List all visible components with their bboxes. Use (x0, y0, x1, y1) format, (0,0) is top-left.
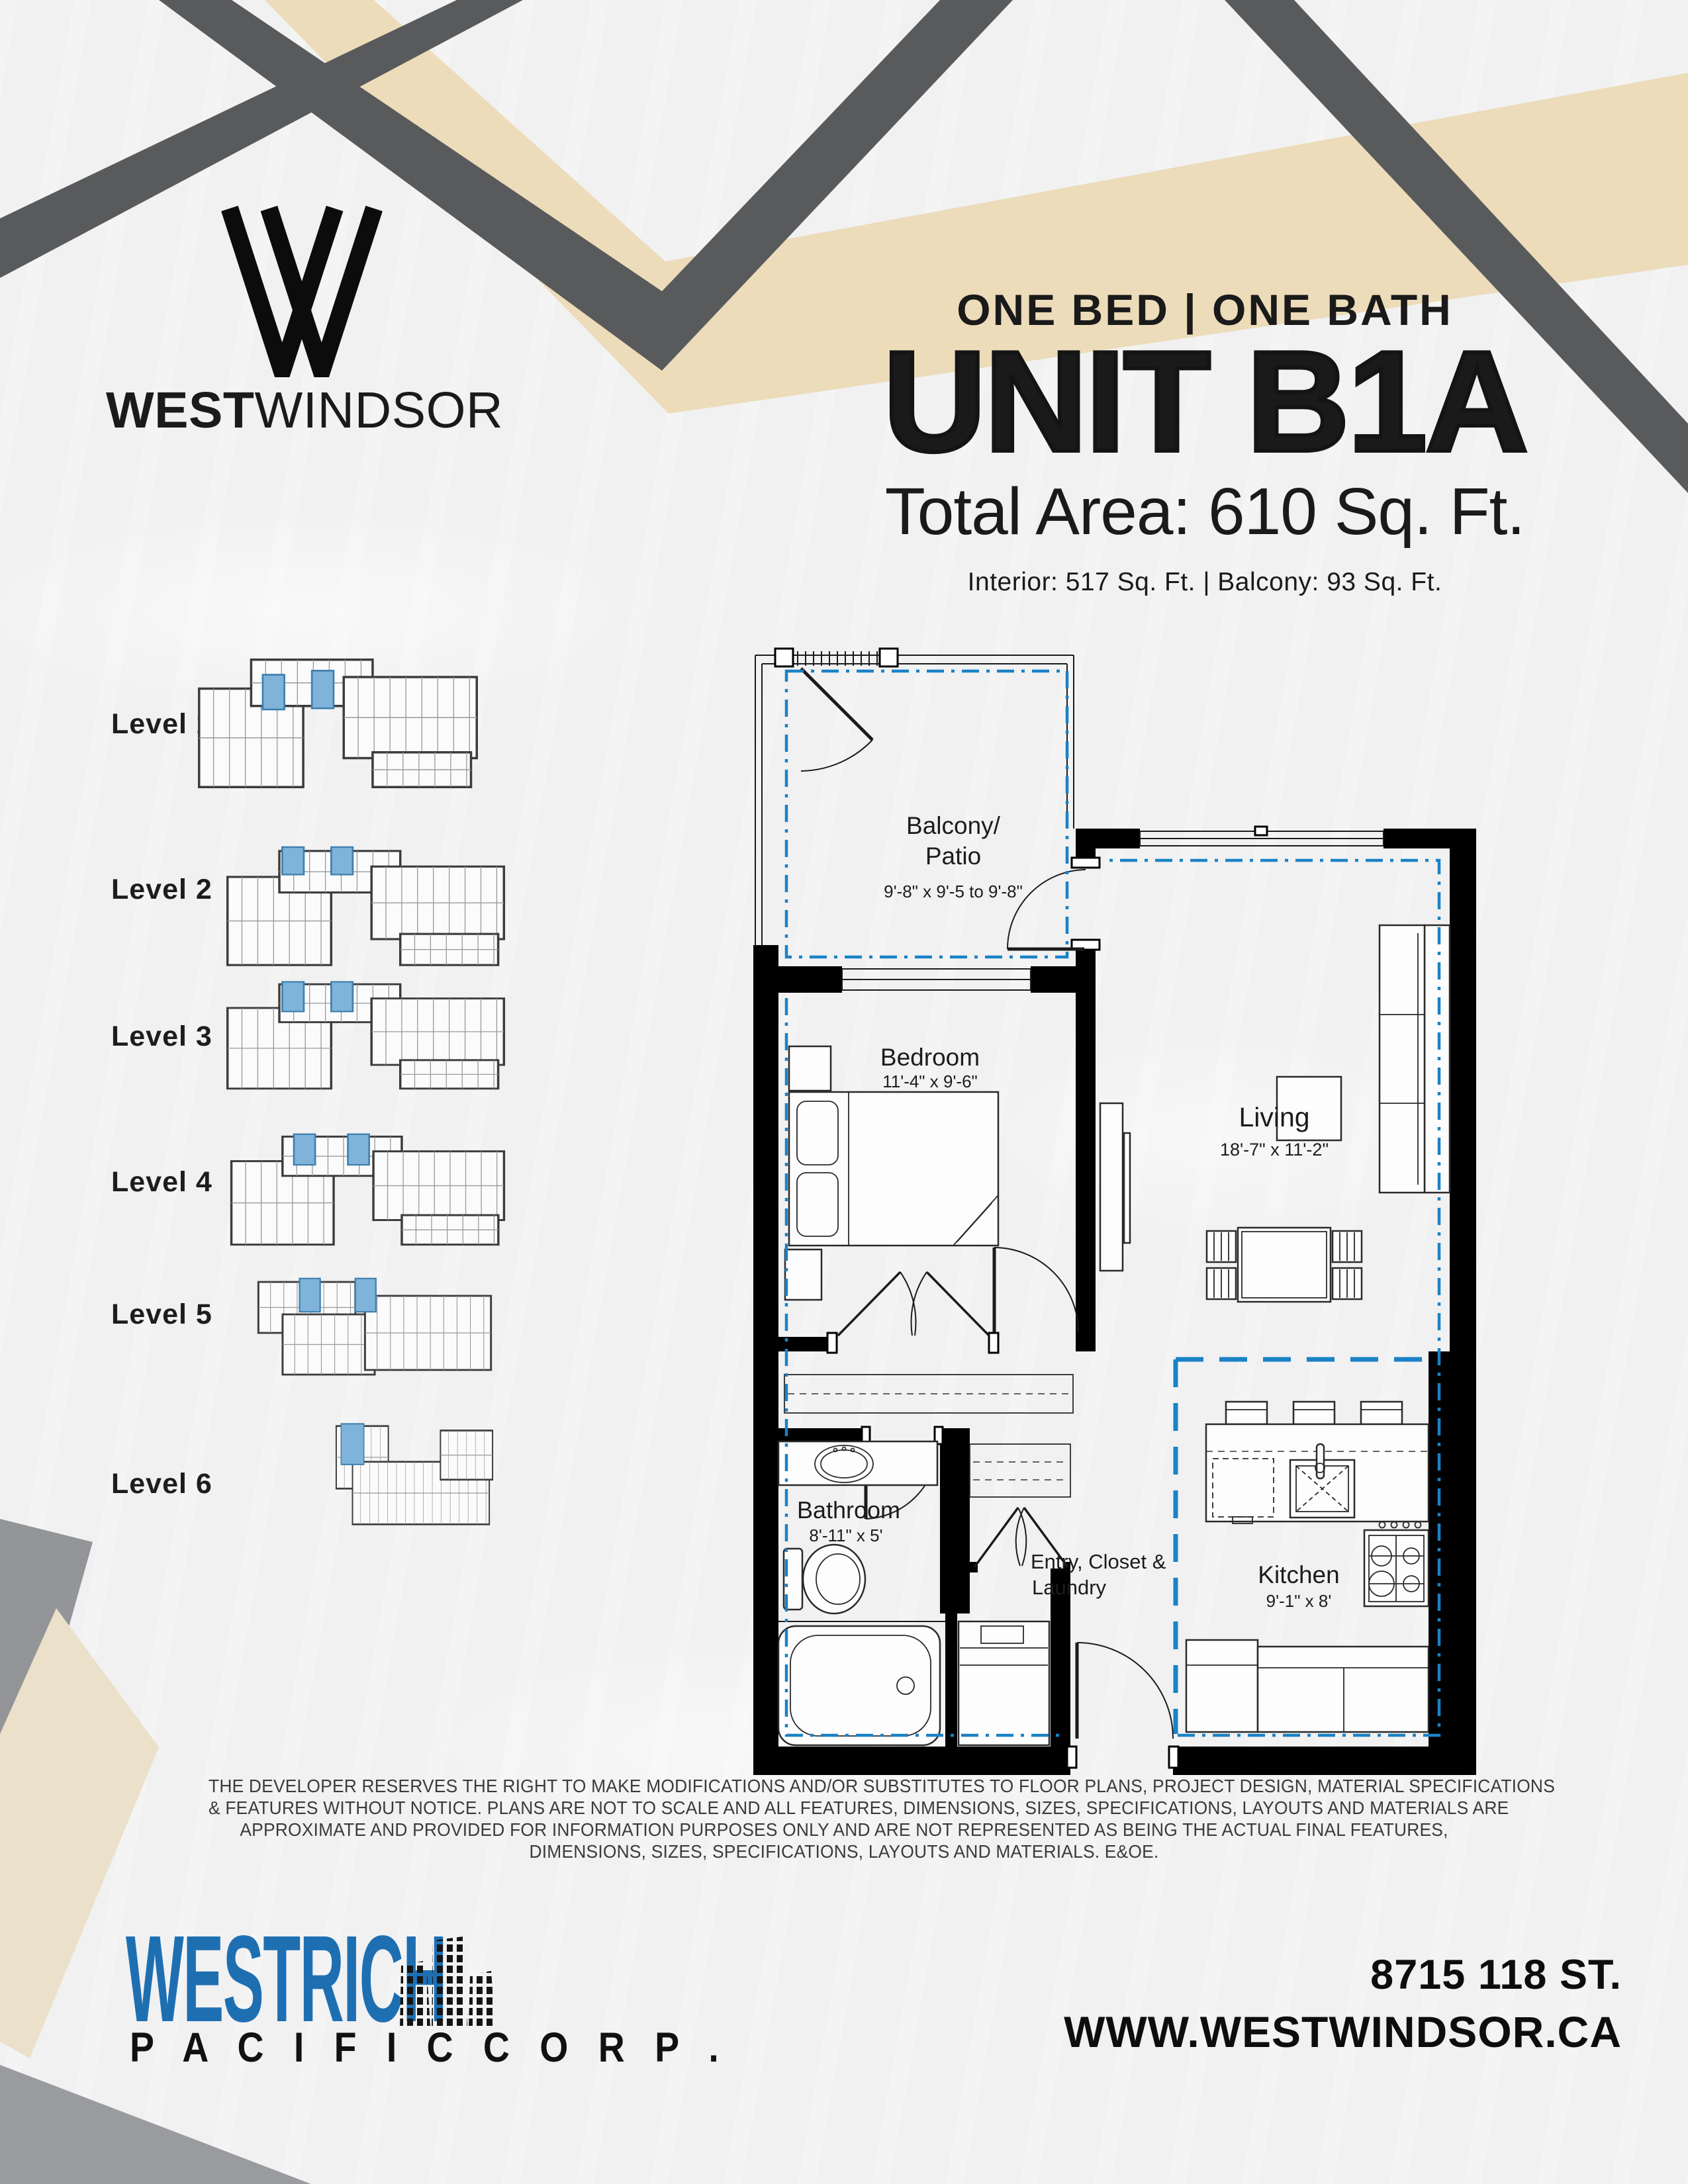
room-label-entry2: Laundry (1032, 1576, 1107, 1599)
dining-set-icon (1207, 1228, 1362, 1302)
street-address: 8715 118 ST. (960, 1951, 1622, 1999)
room-label-balcony: Balcony/ (906, 812, 1001, 839)
level-label: Level 3 (111, 1021, 212, 1053)
disclaimer: THE DEVELOPER RESERVES THE RIGHT TO MAKE… (209, 1775, 1479, 1862)
nightstand-icon (789, 1046, 831, 1091)
stove-icon (1364, 1522, 1429, 1607)
title-block: ONE BED | ONE BATH UNIT B1A Total Area: … (804, 0, 1605, 635)
room-dim-kitchen: 9'-1" x 8' (1266, 1591, 1332, 1611)
level-thumbnail (226, 1132, 510, 1250)
windows (842, 827, 1383, 990)
room-label-balcony2: Patio (925, 842, 981, 870)
disclaimer-line: DIMENSIONS, SIZES, SPECIFICATIONS, LAYOU… (209, 1841, 1479, 1862)
total-area: Total Area: 610 Sq. Ft. (804, 474, 1605, 550)
balcony-railing (755, 649, 1074, 965)
level-label: Level 6 (111, 1468, 212, 1500)
flyer-page: WESTWINDSOR ONE BED | ONE BATH UNIT B1A … (0, 0, 1688, 2184)
toilet-icon (784, 1545, 865, 1614)
room-label-entry: Entry, Closet & (1031, 1550, 1166, 1573)
room-label-bedroom: Bedroom (880, 1044, 980, 1071)
disclaimer-line: APPROXIMATE AND PROVIDED FOR INFORMATION… (209, 1819, 1479, 1841)
developer-logo-subtext: P A C I F I C C O R P . (130, 2024, 729, 2071)
area-breakdown: Interior: 517 Sq. Ft. | Balcony: 93 Sq. … (804, 568, 1605, 597)
room-label-kitchen: Kitchen (1258, 1561, 1339, 1588)
room-dim-bathroom: 8'-11" x 5' (809, 1525, 882, 1545)
level-label: Level 5 (111, 1298, 212, 1331)
bathtub-icon (778, 1626, 940, 1745)
room-dim-bedroom: 11'-4" x 9'-6" (882, 1071, 978, 1091)
kitchen-counter-icon (1186, 1640, 1429, 1732)
level-thumbnail (193, 654, 483, 793)
level-label: Level 4 (111, 1166, 212, 1199)
level-thumbnail (333, 1422, 496, 1529)
unit-title: UNIT B1A (804, 330, 1605, 473)
level-thumbnail (254, 1277, 496, 1388)
floor-plan: Balcony/ Patio 9'-8" x 9'-5 to 9'-8" Bed… (735, 635, 1489, 1777)
levels-column: Level 1Level 2Level 3Level 4Level 5Level… (0, 0, 728, 1588)
bathroom-vanity-icon (778, 1441, 937, 1485)
disclaimer-line: THE DEVELOPER RESERVES THE RIGHT TO MAKE… (209, 1775, 1479, 1797)
bed-icon (789, 1092, 998, 1246)
nightstand-icon (785, 1250, 821, 1300)
washer-icon (959, 1621, 1049, 1745)
room-label-bathroom: Bathroom (797, 1496, 900, 1524)
tv-unit-icon (1100, 1103, 1130, 1271)
level-thumbnail (222, 846, 510, 970)
level-thumbnail (222, 979, 510, 1093)
room-dim-balcony: 9'-8" x 9'-5 to 9'-8" (884, 882, 1023, 901)
room-dim-living: 18'-7" x 11'-2" (1220, 1140, 1329, 1160)
level-label: Level 2 (111, 874, 212, 906)
doors (838, 870, 1173, 1739)
room-label-living: Living (1239, 1102, 1309, 1132)
website-url: WWW.WESTWINDSOR.CA (960, 2007, 1622, 2057)
disclaimer-line: & FEATURES WITHOUT NOTICE. PLANS ARE NOT… (209, 1797, 1479, 1819)
balcony-gate-leaf (801, 668, 872, 740)
footer-address-block: 8715 118 ST. WWW.WESTWINDSOR.CA (960, 1951, 1622, 2057)
